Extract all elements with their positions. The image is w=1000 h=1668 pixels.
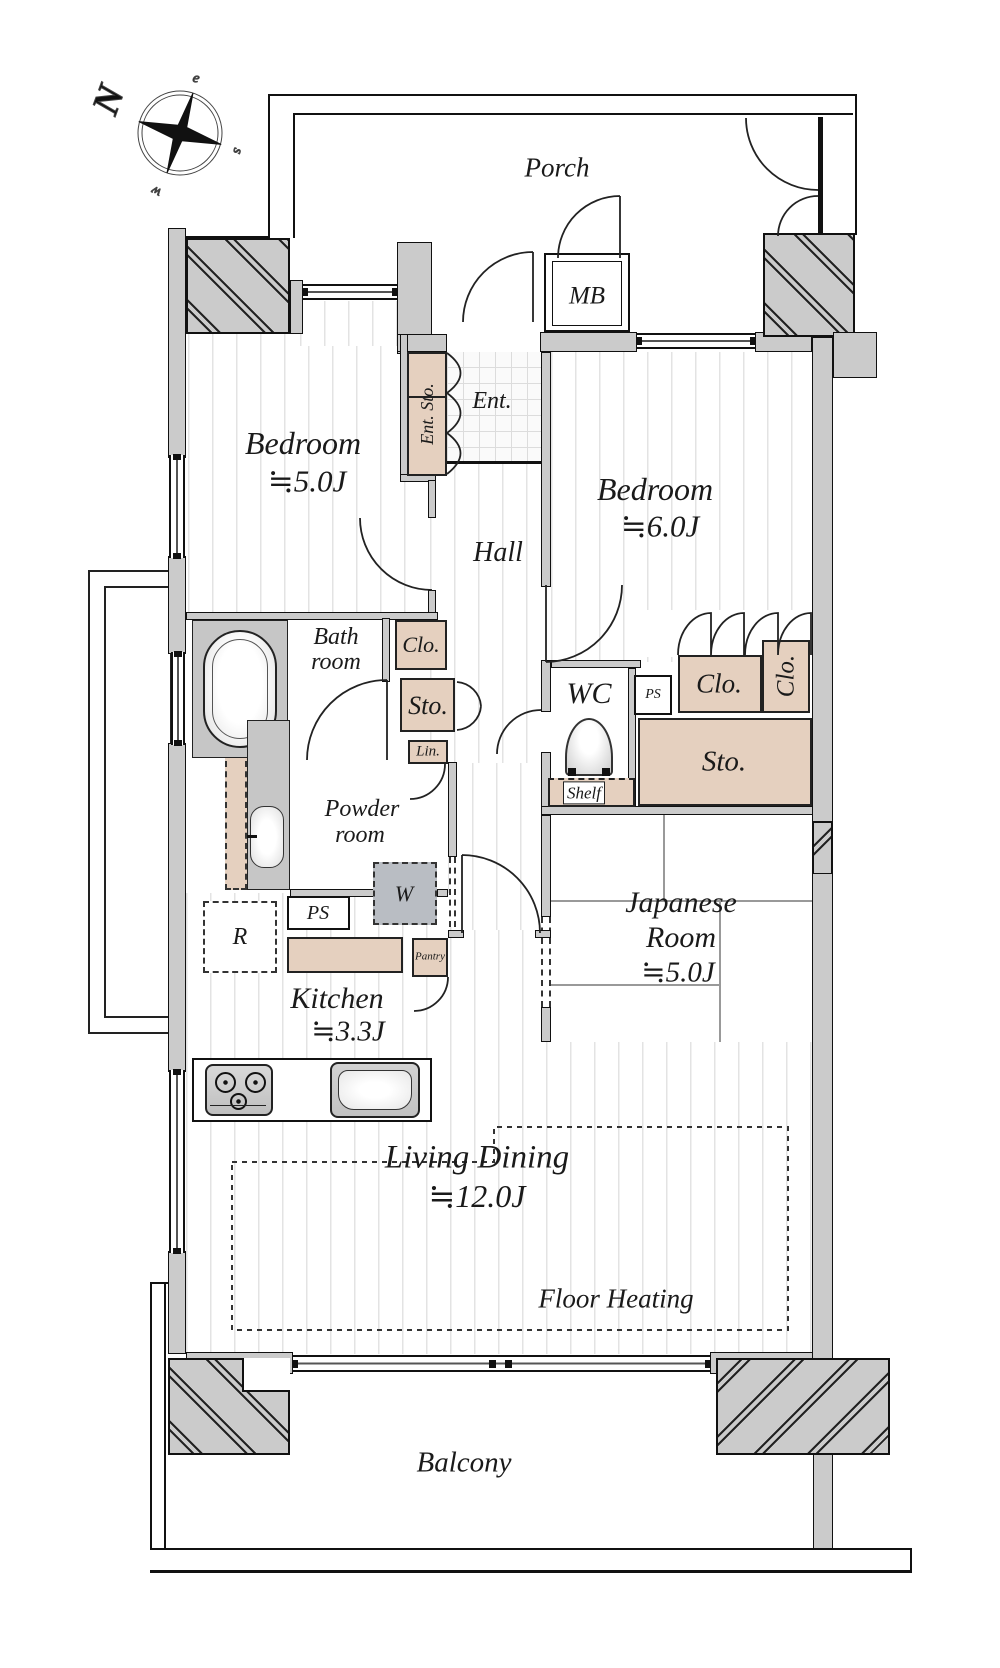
wall <box>382 618 390 682</box>
pillar <box>716 1358 890 1455</box>
pocket-door <box>449 857 456 927</box>
door-frame <box>818 117 823 233</box>
bedroom-east-label: Bedroom <box>597 473 713 505</box>
wall <box>812 337 833 823</box>
powder-room-label-1: Powder <box>325 797 400 821</box>
wall <box>551 660 641 668</box>
ps-kitchen-label: PS <box>307 903 329 923</box>
wall <box>437 889 448 897</box>
pillar <box>186 238 290 334</box>
pillar <box>763 233 855 337</box>
compass-icon: e s w N <box>84 71 245 200</box>
powder-room-label-2: room <box>335 823 385 847</box>
window <box>637 333 755 349</box>
window <box>169 455 185 558</box>
japanese-room-size: ≒5.0J <box>641 959 714 988</box>
japanese-room-label-1: Japanese <box>625 888 737 918</box>
japanese-room-label-2: Room <box>646 923 716 953</box>
boundary-line <box>268 94 270 238</box>
faucet-icon <box>247 835 257 838</box>
boundary-line <box>855 94 857 235</box>
bathroom-label-1: Bath <box>313 625 358 649</box>
hall-label: Hall <box>473 539 523 567</box>
wall <box>541 806 813 815</box>
boundary-line <box>268 94 857 96</box>
wall <box>812 873 833 1360</box>
wall <box>833 332 877 378</box>
bedroom-west-label: Bedroom <box>245 427 361 459</box>
wall <box>541 660 551 712</box>
ps-upper-label: PS <box>645 688 661 702</box>
entrance-step <box>447 461 541 464</box>
floor-plan: e s w N Porch MB Ent. Ent. Sto. Bedroom … <box>0 0 1000 1668</box>
toilet-seat <box>602 768 610 776</box>
wall <box>540 332 637 352</box>
stove-icon <box>205 1064 273 1116</box>
entrance-label: Ent. <box>472 389 511 413</box>
wall <box>168 1251 186 1354</box>
window <box>171 652 185 745</box>
linen-label: Lin. <box>416 745 440 760</box>
window-tick <box>489 1360 496 1368</box>
refrigerator-label: R <box>233 925 248 949</box>
compass-north: N <box>84 78 134 121</box>
balcony-railing <box>150 1548 912 1573</box>
boundary-line <box>293 113 853 115</box>
compass-east: e <box>191 71 202 87</box>
side-alcove-outline <box>104 586 172 1018</box>
window <box>303 284 397 300</box>
balcony-line <box>164 1282 166 1550</box>
bedroom-west-size: ≒5.0J <box>268 466 346 497</box>
wall <box>448 762 457 857</box>
porch-door-icon <box>558 196 620 258</box>
wall <box>541 352 551 587</box>
grill <box>210 1105 266 1111</box>
kitchen-counter-box <box>287 937 403 973</box>
wall <box>168 556 186 654</box>
closet-east-label: Clo. <box>696 671 742 698</box>
kitchen-size: ≒3.3J <box>311 1018 384 1047</box>
wall <box>535 930 551 938</box>
kitchen-sink-icon <box>330 1062 420 1118</box>
toilet-seat <box>568 768 576 776</box>
window <box>169 1070 185 1253</box>
storage-east-label: Sto. <box>702 748 746 777</box>
wall <box>428 480 436 518</box>
compass-west: w <box>148 182 164 200</box>
wall <box>168 228 186 458</box>
balcony-line <box>150 1282 152 1573</box>
storage-hall-label: Sto. <box>408 693 448 719</box>
bathroom-label-2: room <box>311 650 361 674</box>
shelf-label: Shelf <box>563 781 605 804</box>
front-door-icon <box>463 252 533 322</box>
entrance-storage-label: Ent. Sto. <box>418 383 436 445</box>
balcony-label: Balcony <box>416 1449 511 1478</box>
wall <box>541 815 551 917</box>
tatami-line <box>719 900 721 1042</box>
hall-floor <box>448 763 541 934</box>
wall-hatch <box>812 821 833 875</box>
burner-icon <box>245 1072 266 1093</box>
closet-east-side-label: Clo. <box>774 655 799 697</box>
burner-icon <box>215 1072 236 1093</box>
living-dining-label: Living Dining <box>385 1142 569 1175</box>
wall <box>168 743 186 1072</box>
window-tick <box>505 1360 512 1368</box>
wall <box>186 612 438 620</box>
wall <box>541 1007 551 1042</box>
balcony-window <box>293 1355 710 1372</box>
boundary-line <box>293 113 295 238</box>
kitchen-label: Kitchen <box>290 984 383 1014</box>
pillar-notch <box>242 1358 290 1392</box>
meter-box-label: MB <box>569 284 605 309</box>
compass-south: s <box>229 146 245 156</box>
porch-label: Porch <box>525 155 590 182</box>
wall <box>448 930 464 938</box>
closet-hall-label: Clo. <box>402 634 439 656</box>
double-door-icon <box>746 118 818 236</box>
living-dining-size: ≒12.0J <box>428 1180 525 1212</box>
bedroom-east-size: ≒6.0J <box>621 511 699 542</box>
floor-heating-label: Floor Heating <box>538 1286 693 1313</box>
pantry-label: Pantry <box>415 952 445 963</box>
washer-label: W <box>395 883 413 905</box>
wc-label: WC <box>567 679 612 709</box>
